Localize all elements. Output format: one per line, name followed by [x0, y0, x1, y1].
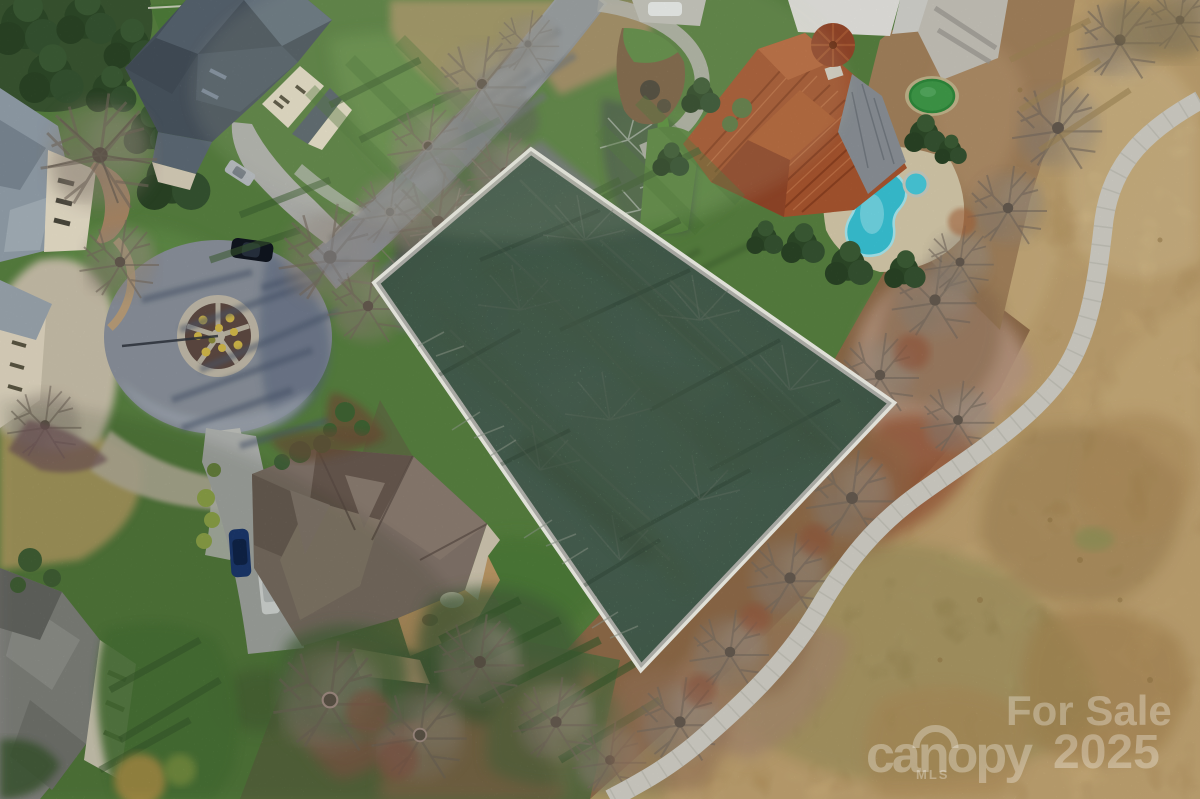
svg-text:2025: 2025	[1053, 726, 1160, 779]
svg-text:MLS: MLS	[916, 767, 949, 782]
